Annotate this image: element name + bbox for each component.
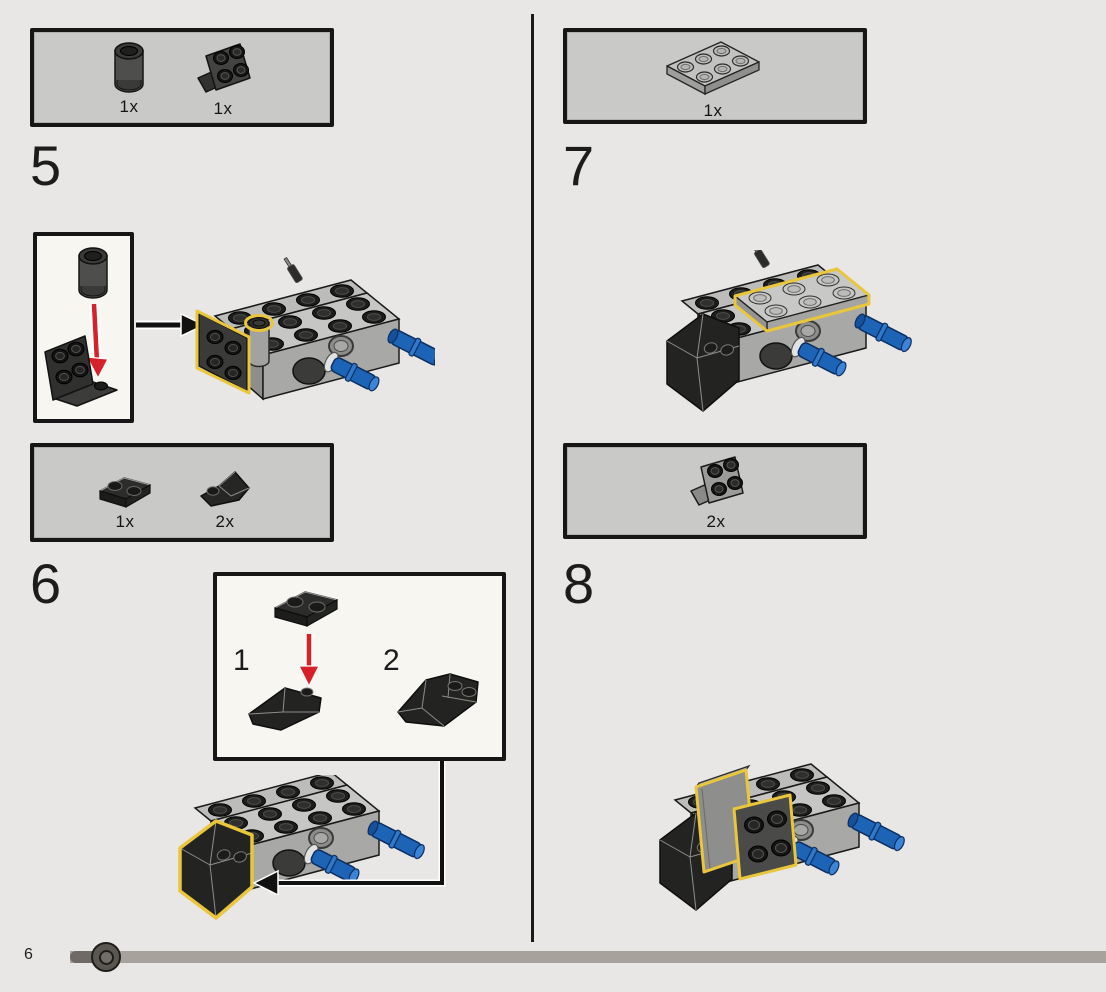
progress-track[interactable] [70, 951, 1106, 963]
bracket-illustration [45, 336, 117, 406]
progress-knob[interactable] [91, 942, 121, 972]
step-5-assembly-illustration [185, 243, 435, 418]
plate-2x3-icon [661, 34, 765, 98]
round-brick-illustration [79, 248, 107, 298]
bracket-1x2-2x2-gray-icon [685, 451, 747, 509]
step-5-inset-diagram [37, 236, 130, 419]
assembled-slopes-illustration [398, 674, 478, 726]
column-divider [531, 14, 534, 942]
step-6-parts-box: 1x 2x [30, 443, 334, 542]
part-bracket-gray: 2x [685, 451, 747, 532]
hose-nozzle-icon [282, 256, 303, 283]
part-bracket: 1x [192, 40, 254, 119]
black-slope-nose [667, 314, 739, 411]
part-count: 1x [214, 99, 233, 119]
step-6-number: 6 [30, 556, 61, 612]
part-plate-1x2: 1x [98, 473, 152, 532]
step-5-inset [33, 232, 134, 423]
part-count: 1x [120, 97, 139, 117]
instructions-page: 1x 1x 5 [0, 0, 1106, 992]
progress-knob-inner [99, 950, 114, 965]
dark-roller [293, 358, 325, 384]
part-count: 1x [704, 101, 723, 121]
step-8-parts-box: 2x [563, 443, 867, 539]
slope-illustration [249, 688, 321, 730]
dark-roller [760, 343, 792, 369]
part-count: 2x [707, 512, 726, 532]
step-5-parts-box: 1x 1x [30, 28, 334, 127]
part-plate-2x3: 1x [661, 34, 765, 121]
step-7-parts-box: 1x [563, 28, 867, 124]
new-slope-nose-part [180, 821, 252, 918]
plate-1x2-illustration [275, 592, 337, 626]
inverted-slope-icon [198, 469, 252, 509]
red-arrow-down [299, 634, 319, 686]
plate-1x2-icon [98, 473, 152, 509]
part-slope: 2x [198, 469, 252, 532]
step-7-number: 7 [563, 138, 594, 194]
step-6-inset-diagram [217, 576, 502, 757]
hose-nozzle-icon [749, 250, 770, 268]
callout-arrow [250, 755, 465, 895]
step-5-number: 5 [30, 138, 61, 194]
step-7-assembly-illustration [645, 250, 920, 425]
round-brick-1x1-icon [110, 42, 148, 94]
part-round-brick: 1x [110, 42, 148, 117]
part-count: 2x [216, 512, 235, 532]
bracket-1x2-2x2-icon [192, 40, 254, 96]
new-bracket-studs-part [734, 795, 796, 879]
step-6-inset: 1 2 [213, 572, 506, 761]
step-8-number: 8 [563, 556, 594, 612]
part-count: 1x [116, 512, 135, 532]
step-8-assembly-illustration [630, 757, 920, 942]
page-number: 6 [24, 946, 33, 964]
